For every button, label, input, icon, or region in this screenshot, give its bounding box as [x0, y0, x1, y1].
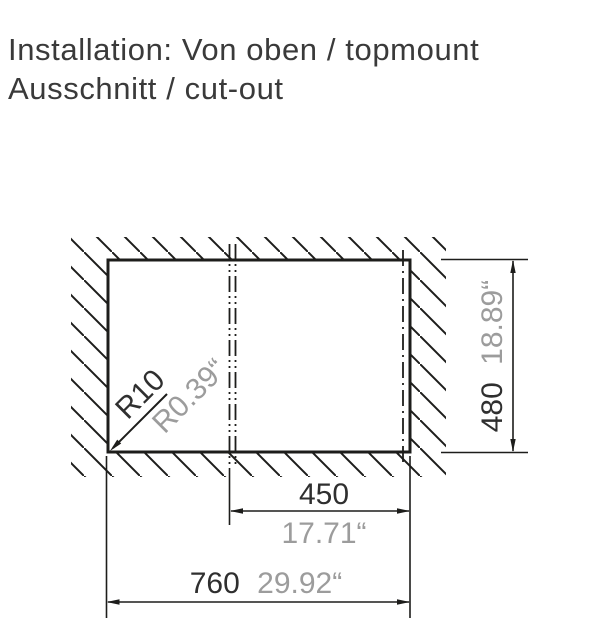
dimension-drain-offset: 450 17.71“ — [230, 468, 411, 550]
page: Installation: Von oben / topmount Aussch… — [0, 0, 612, 640]
width-label: 760 29.92“ — [190, 567, 342, 600]
drain-offset-inch-label: 17.71“ — [281, 517, 366, 550]
dimension-height: 480 18.89“ — [441, 260, 528, 453]
cutout-technical-drawing: R10 R0.39“ 480 18.89“ 450 17.71“ — [0, 0, 612, 640]
height-label: 480 18.89“ — [476, 280, 509, 432]
drain-offset-mm-label: 450 — [299, 478, 349, 511]
